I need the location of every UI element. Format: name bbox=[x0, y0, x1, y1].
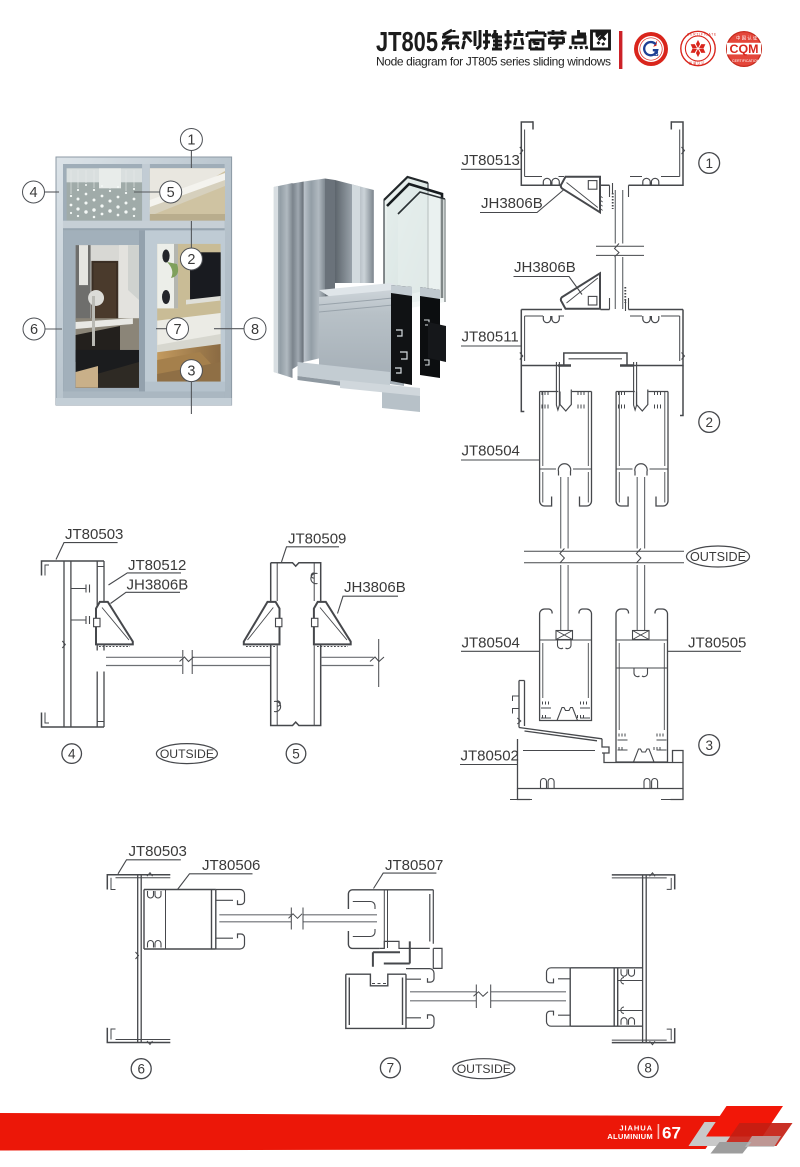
svg-text:ALUMINIUM: ALUMINIUM bbox=[607, 1132, 653, 1141]
svg-text:JH3806B: JH3806B bbox=[127, 577, 189, 594]
svg-text:Node diagram for JT805 series: Node diagram for JT805 series sliding wi… bbox=[376, 55, 611, 69]
svg-text:JH3806B: JH3806B bbox=[481, 195, 543, 212]
svg-text:JT805: JT805 bbox=[376, 26, 438, 57]
svg-text:JT80513: JT80513 bbox=[462, 152, 520, 169]
svg-text:3: 3 bbox=[705, 738, 713, 753]
svg-text:JT80509: JT80509 bbox=[288, 531, 346, 548]
svg-text:C E R T I F I C A T E: C E R T I F I C A T E bbox=[687, 33, 716, 37]
svg-text:JH3806B: JH3806B bbox=[514, 259, 576, 276]
svg-text:OUTSIDE: OUTSIDE bbox=[160, 747, 214, 761]
svg-text:OUTSIDE: OUTSIDE bbox=[690, 550, 746, 564]
svg-text:OUTSIDE: OUTSIDE bbox=[457, 1062, 511, 1076]
svg-text:JT80504: JT80504 bbox=[462, 443, 520, 460]
svg-text:中 国 认 证: 中 国 认 证 bbox=[736, 35, 758, 42]
svg-text:质 量 认 证: 质 量 认 证 bbox=[689, 61, 705, 66]
svg-text:JT80502: JT80502 bbox=[461, 748, 519, 765]
svg-text:JT80511: JT80511 bbox=[462, 329, 519, 346]
svg-text:JT80505: JT80505 bbox=[688, 635, 746, 652]
svg-text:5: 5 bbox=[167, 185, 175, 201]
svg-text:4: 4 bbox=[29, 185, 37, 201]
svg-text:JT80504: JT80504 bbox=[462, 635, 520, 652]
svg-text:1: 1 bbox=[705, 156, 713, 171]
svg-text:JT80503: JT80503 bbox=[65, 526, 123, 543]
svg-text:8: 8 bbox=[644, 1060, 652, 1075]
svg-text:4: 4 bbox=[68, 746, 76, 761]
svg-text:JH3806B: JH3806B bbox=[344, 579, 406, 596]
svg-text:JT80512: JT80512 bbox=[128, 557, 186, 574]
svg-text:CQM: CQM bbox=[730, 42, 759, 56]
svg-text:67: 67 bbox=[662, 1124, 681, 1143]
svg-text:JT80503: JT80503 bbox=[129, 843, 187, 860]
svg-text:6: 6 bbox=[137, 1062, 145, 1077]
svg-text:8: 8 bbox=[251, 322, 259, 338]
svg-text:7: 7 bbox=[387, 1061, 395, 1076]
svg-text:3: 3 bbox=[187, 364, 195, 380]
svg-text:7: 7 bbox=[173, 322, 181, 338]
svg-text:JT80506: JT80506 bbox=[202, 857, 260, 874]
svg-text:6: 6 bbox=[30, 322, 38, 338]
svg-text:2: 2 bbox=[187, 252, 195, 268]
svg-text:2: 2 bbox=[705, 415, 713, 430]
svg-text:5: 5 bbox=[292, 746, 300, 761]
svg-text:CERTIFICATION: CERTIFICATION bbox=[732, 59, 760, 63]
svg-text:JT80507: JT80507 bbox=[385, 857, 443, 874]
svg-text:1: 1 bbox=[187, 133, 195, 149]
svg-text:B: B bbox=[654, 51, 659, 58]
